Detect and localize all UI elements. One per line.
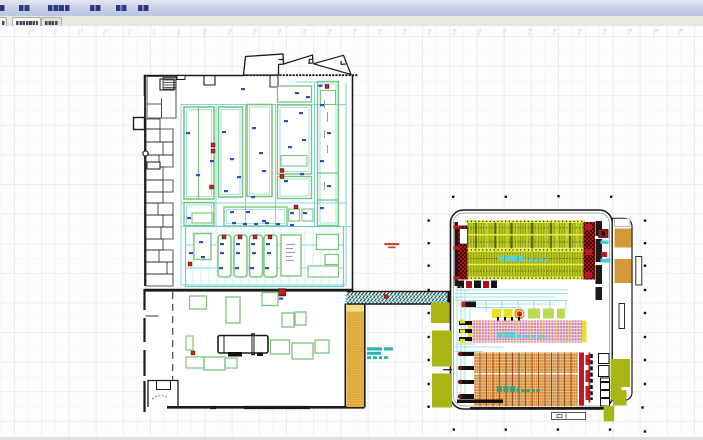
svg-text:-10: -10 (103, 29, 108, 33)
svg-text:75: 75 (528, 29, 532, 33)
svg-text:60: 60 (453, 29, 457, 33)
svg-text:35: 35 (328, 29, 332, 33)
svg-text:-25: -25 (28, 29, 33, 33)
svg-text:25: 25 (278, 29, 282, 33)
svg-text:15: 15 (228, 29, 232, 33)
svg-text:85: 85 (578, 29, 582, 33)
svg-text:5: 5 (178, 29, 180, 33)
svg-text:55: 55 (428, 29, 432, 33)
svg-text:10: 10 (203, 29, 207, 33)
svg-text:40: 40 (353, 29, 357, 33)
svg-text:30: 30 (303, 29, 307, 33)
svg-text:95: 95 (628, 29, 632, 33)
svg-text:20: 20 (253, 29, 257, 33)
svg-text:90: 90 (603, 29, 607, 33)
svg-text:-15: -15 (78, 29, 83, 33)
svg-text:45: 45 (378, 29, 382, 33)
svg-text:65: 65 (478, 29, 482, 33)
svg-text:-20: -20 (53, 29, 58, 33)
svg-text:100: 100 (653, 29, 659, 33)
svg-text:0: 0 (153, 29, 155, 33)
svg-text:105: 105 (678, 29, 684, 33)
svg-text:-5: -5 (128, 29, 131, 33)
svg-text:70: 70 (503, 29, 507, 33)
svg-text:80: 80 (553, 29, 557, 33)
svg-text:50: 50 (403, 29, 407, 33)
